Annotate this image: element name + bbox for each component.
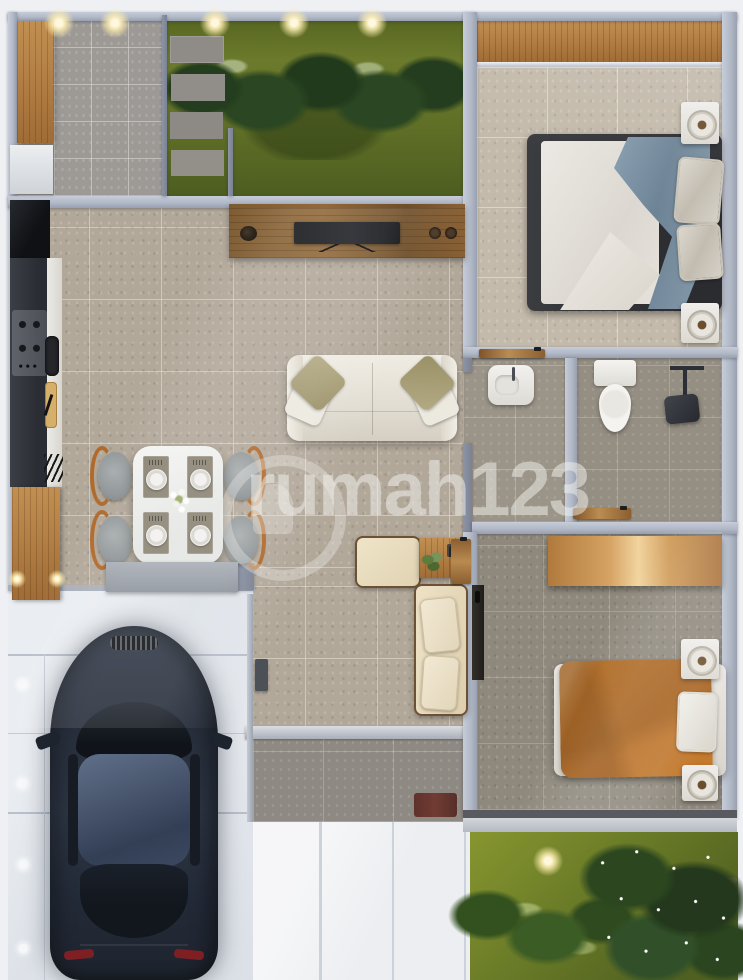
car-trunk-line (80, 944, 188, 946)
toilet (594, 360, 636, 434)
wall-bathroom-bottom (472, 522, 737, 534)
car-side-window (68, 754, 78, 866)
threshold-light (48, 570, 66, 588)
nightstand (681, 102, 719, 144)
utility-appliance (10, 145, 53, 194)
bed1-pillow (676, 223, 724, 282)
ceiling-light (100, 8, 130, 38)
kitchen-sink (45, 336, 59, 376)
tv-screen (294, 222, 400, 244)
place-setting (143, 512, 169, 554)
sofa-cushion-seam (372, 363, 373, 435)
knife-set (44, 454, 63, 482)
table-lamp (687, 770, 717, 800)
wardrobe (548, 536, 722, 586)
walkway (253, 822, 470, 980)
table-lamp (687, 110, 717, 140)
stepping-stone (171, 74, 225, 101)
stepping-stones (170, 36, 226, 182)
car-hood-vent (110, 636, 158, 650)
place-setting (187, 512, 213, 554)
ground-light (19, 860, 28, 869)
speaker (445, 227, 457, 239)
nightstand (681, 639, 719, 679)
door-handle (475, 591, 480, 603)
shower-fixture (662, 364, 706, 426)
utility-cabinet-wood (17, 21, 53, 143)
bedroom1-balcony-wood (477, 21, 722, 62)
bed1-pillow (673, 156, 725, 226)
doormat (414, 793, 457, 817)
table-lamp (687, 646, 717, 676)
ceiling-light (200, 8, 230, 38)
nook-bench (355, 536, 421, 588)
front-door-threshold (245, 726, 463, 739)
basin-bowl (495, 375, 519, 395)
garden-lamp-glow (533, 846, 563, 876)
speaker (429, 227, 441, 239)
dining-chair (98, 452, 132, 500)
ceiling-light (357, 8, 387, 38)
garden-tree (578, 834, 743, 980)
ground-light (19, 944, 28, 953)
wall-bedroom2-bottom-ledge (463, 818, 737, 832)
shower-head (664, 393, 701, 424)
nightstand (681, 303, 719, 343)
nightstand (682, 765, 718, 801)
table-lamp (687, 310, 717, 340)
dining-step-platform (106, 562, 238, 592)
stepping-stone (170, 36, 224, 63)
decor-bowl (240, 226, 257, 241)
dining-chair (224, 516, 258, 564)
bedroom2-door-panel (451, 539, 471, 584)
kitchen-fridge (10, 200, 50, 258)
wall-garden-inner (228, 128, 233, 196)
toilet-bowl (599, 384, 631, 432)
ceiling-light (44, 8, 74, 38)
kitchen-stove (12, 310, 47, 376)
wall-hallway-left-lower (463, 443, 472, 534)
bed2-pillow (676, 691, 718, 752)
gate-post (255, 659, 268, 691)
driveway-curb (247, 594, 253, 822)
dining-chair (98, 516, 132, 564)
car (50, 626, 218, 980)
stepping-stone (170, 112, 223, 139)
floorplan-render: rumah123 (0, 0, 743, 980)
ground-light (18, 779, 27, 788)
threshold-light (8, 570, 26, 588)
car-roof (78, 754, 190, 866)
daybed-pillow (420, 655, 460, 711)
bedroom1-door (479, 349, 545, 358)
bedroom1-window-track (477, 62, 722, 67)
stepping-stone (171, 150, 224, 176)
bathroom-door (573, 508, 631, 519)
faucet (512, 367, 515, 381)
table-centerpiece-flowers (165, 486, 193, 516)
wall-bedroom1-left (463, 12, 477, 358)
dining-chair (224, 452, 258, 500)
tree-flowers (584, 838, 739, 976)
nook-plant (418, 548, 446, 574)
wall-hallway-left-upper (463, 358, 472, 372)
wall-hall-bath-divider (565, 358, 577, 532)
wall-bedroom2-bottom-dark (463, 810, 737, 818)
toilet-tank (594, 360, 636, 386)
ceiling-light (279, 8, 309, 38)
driveway-joint-vertical (44, 654, 45, 980)
car-side-window (190, 754, 200, 866)
daybed-pillow (419, 596, 460, 653)
wall-garage-garden-divider (162, 15, 167, 196)
washbasin (488, 365, 534, 405)
ground-light (18, 680, 27, 689)
shower-valve (670, 366, 704, 370)
bedroom2-sliding-door (472, 585, 484, 680)
